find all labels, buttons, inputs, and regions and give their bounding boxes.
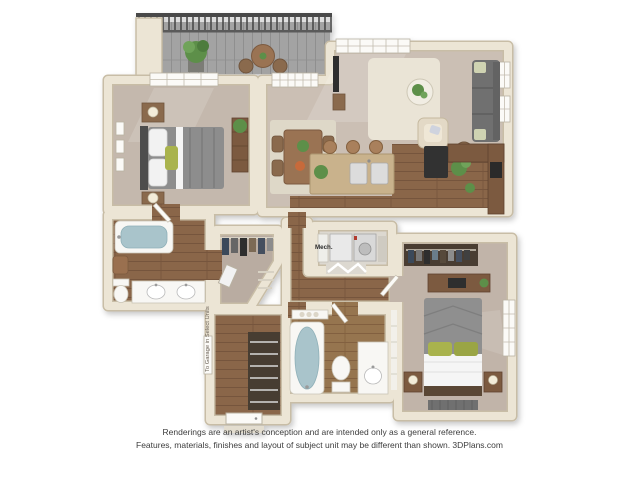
disclaimer-text: Renderings are an artist's conception an… bbox=[0, 426, 639, 451]
kitchen-cooktop bbox=[490, 162, 502, 178]
bedroom1-nightstand-bottom bbox=[142, 192, 164, 204]
dining-centerpiece bbox=[297, 140, 309, 152]
island-sink-2 bbox=[371, 163, 388, 184]
bedroom2-nightstand-right bbox=[484, 372, 502, 392]
bedroom1-dresser bbox=[232, 118, 248, 172]
kitchen-island bbox=[310, 154, 394, 194]
mech-shelf bbox=[378, 236, 387, 262]
bedroom1-plant bbox=[233, 119, 247, 133]
floor-plan-svg: Mech. bbox=[0, 0, 639, 479]
living-window-right-2 bbox=[499, 96, 510, 122]
bedroom1-bed bbox=[140, 126, 224, 190]
bath2-towel-niche bbox=[292, 310, 328, 319]
linen-closet bbox=[248, 332, 280, 410]
balcony-railing-pickets bbox=[136, 17, 332, 31]
kitchen-counter-right bbox=[488, 144, 504, 214]
bath2-vanity bbox=[358, 342, 388, 394]
living-window-right-1 bbox=[499, 62, 510, 88]
bedroom1-window bbox=[150, 73, 218, 86]
disclaimer-line-2: Features, materials, finishes and layout… bbox=[0, 439, 639, 452]
garage-note-label: To Garage in Select Units bbox=[205, 306, 211, 372]
bedroom2-pillow-1 bbox=[428, 342, 452, 356]
bedroom2-pillow-2 bbox=[454, 342, 478, 356]
bedroom1-wall-art bbox=[116, 122, 124, 171]
balcony-french-door bbox=[272, 73, 318, 87]
bedroom2-rug bbox=[428, 400, 478, 410]
balcony-railing-top-rail bbox=[136, 13, 332, 17]
bedroom1-nightstand-top bbox=[142, 103, 164, 122]
master-vanity bbox=[132, 281, 205, 303]
living-sofa bbox=[472, 60, 500, 142]
master-toilet bbox=[113, 279, 129, 303]
bedroom2-shelf-column bbox=[391, 310, 397, 390]
bedroom2-desk bbox=[428, 274, 490, 292]
disclaimer-line-1: Renderings are an artist's conception an… bbox=[0, 426, 639, 439]
kitchen-bar-stools bbox=[324, 141, 383, 154]
island-plant bbox=[314, 165, 328, 179]
mech-room: Mech. bbox=[315, 234, 387, 262]
door-opening-living-corridor bbox=[288, 212, 306, 228]
bath2-tub bbox=[290, 322, 324, 394]
balcony-railing-bottom-rail bbox=[136, 30, 332, 33]
bath2-toilet bbox=[332, 356, 350, 392]
floor-plan-screenshot: Mech. bbox=[0, 0, 639, 479]
floor-plan-image: Mech. bbox=[0, 0, 639, 479]
washer bbox=[330, 234, 352, 261]
sofa-pillow-2 bbox=[474, 129, 486, 140]
tv bbox=[333, 56, 339, 92]
refrigerator bbox=[424, 146, 448, 178]
living-armchair bbox=[418, 118, 448, 148]
entry-door bbox=[226, 413, 262, 424]
master-tub bbox=[115, 221, 173, 253]
mech-label: Mech. bbox=[315, 244, 333, 251]
door-opening-bath-closet bbox=[204, 250, 222, 280]
bedroom2-nightstand-left bbox=[404, 372, 422, 392]
living-window-top bbox=[336, 39, 410, 53]
bedroom2-bed bbox=[424, 298, 482, 396]
island-sink-1 bbox=[350, 163, 367, 184]
bedroom2-closet bbox=[404, 244, 478, 266]
kitchen-plant bbox=[465, 183, 475, 193]
sofa-pillow-1 bbox=[474, 62, 486, 73]
balcony bbox=[136, 13, 332, 76]
living-coffee-table bbox=[407, 79, 433, 105]
master-bath-bench bbox=[113, 256, 128, 274]
bedroom1-accent-pillow bbox=[165, 146, 178, 170]
balcony-column bbox=[136, 18, 162, 76]
